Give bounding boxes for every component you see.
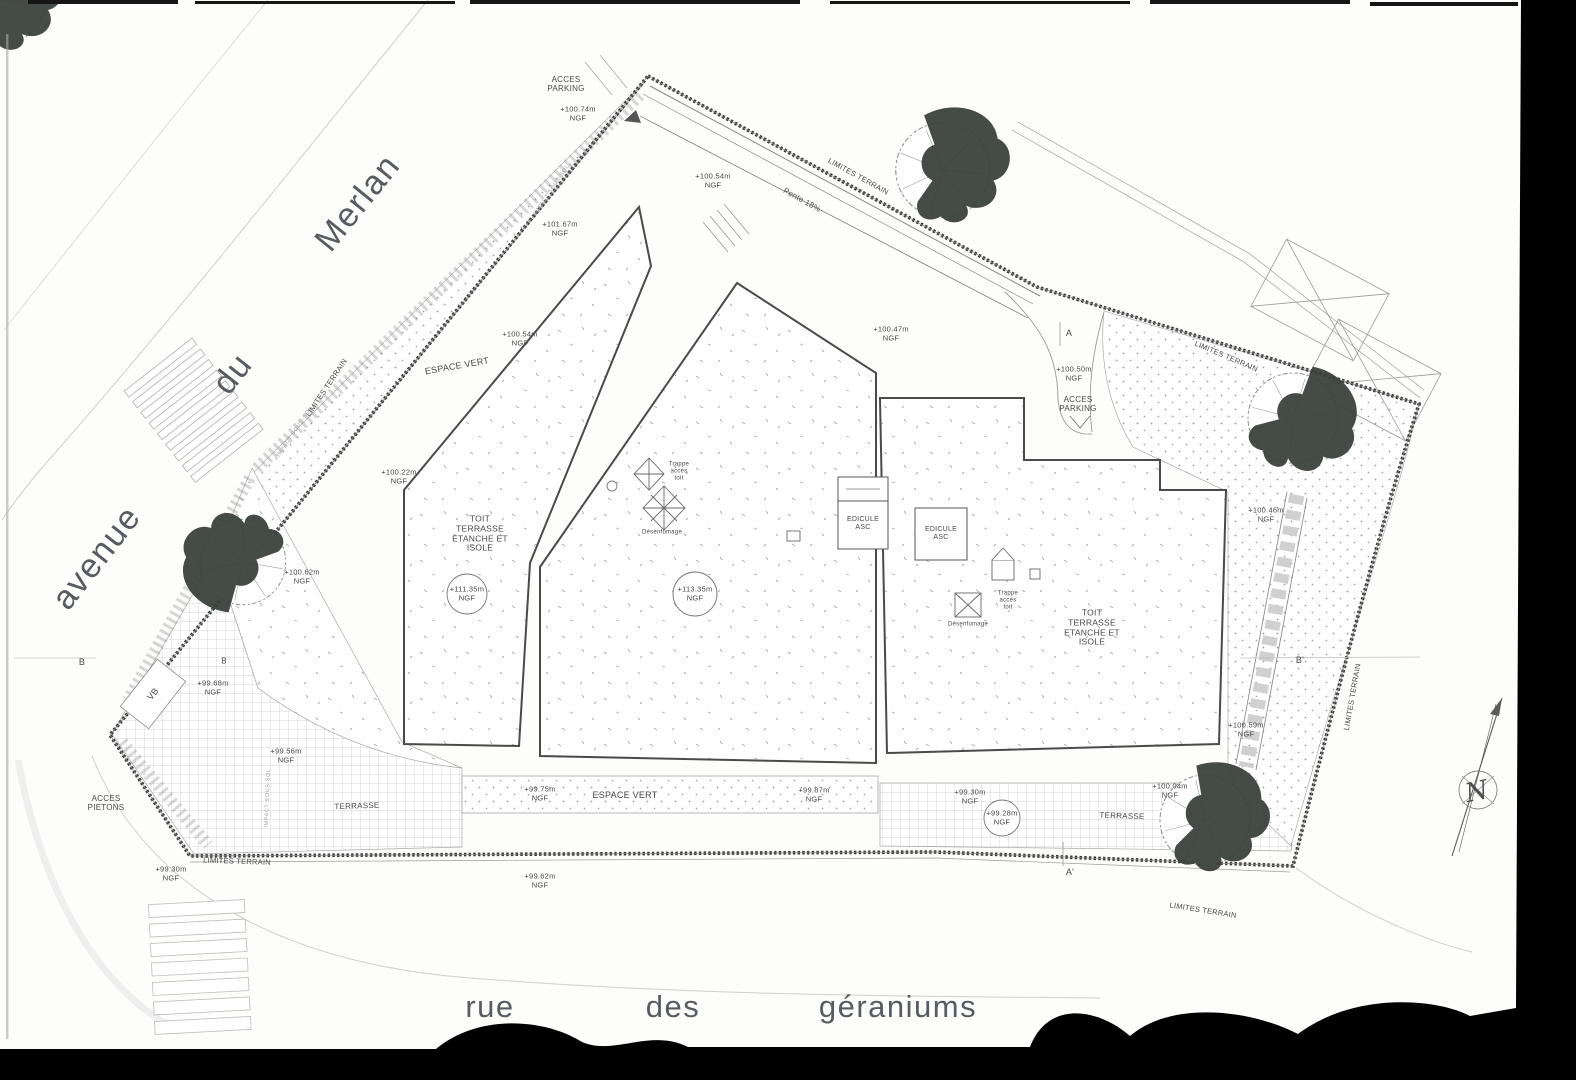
- espace-vert-strip-bottom: [462, 776, 878, 813]
- roof-drain-mid: [607, 481, 617, 491]
- stairs-top-middle: [703, 204, 749, 252]
- roof-hatch-right: [1030, 569, 1040, 579]
- desenfumage-right-icon: [955, 593, 981, 617]
- site-plan-scan: avenueduMerlanruedesgéraniumsLIMITES TER…: [0, 0, 1576, 1080]
- plan-linework: [0, 0, 1576, 1080]
- tree-icon: [896, 107, 1010, 222]
- construction-x-box-1: [1251, 239, 1389, 361]
- edicule-asc-right-box: [915, 508, 967, 560]
- roof-hatch-mid: [787, 531, 800, 541]
- crosswalk-avenue: [124, 338, 263, 482]
- edicule-asc-left-box: [838, 477, 888, 549]
- north-compass-icon: [1452, 698, 1502, 856]
- crosswalk-rue: [148, 900, 251, 1035]
